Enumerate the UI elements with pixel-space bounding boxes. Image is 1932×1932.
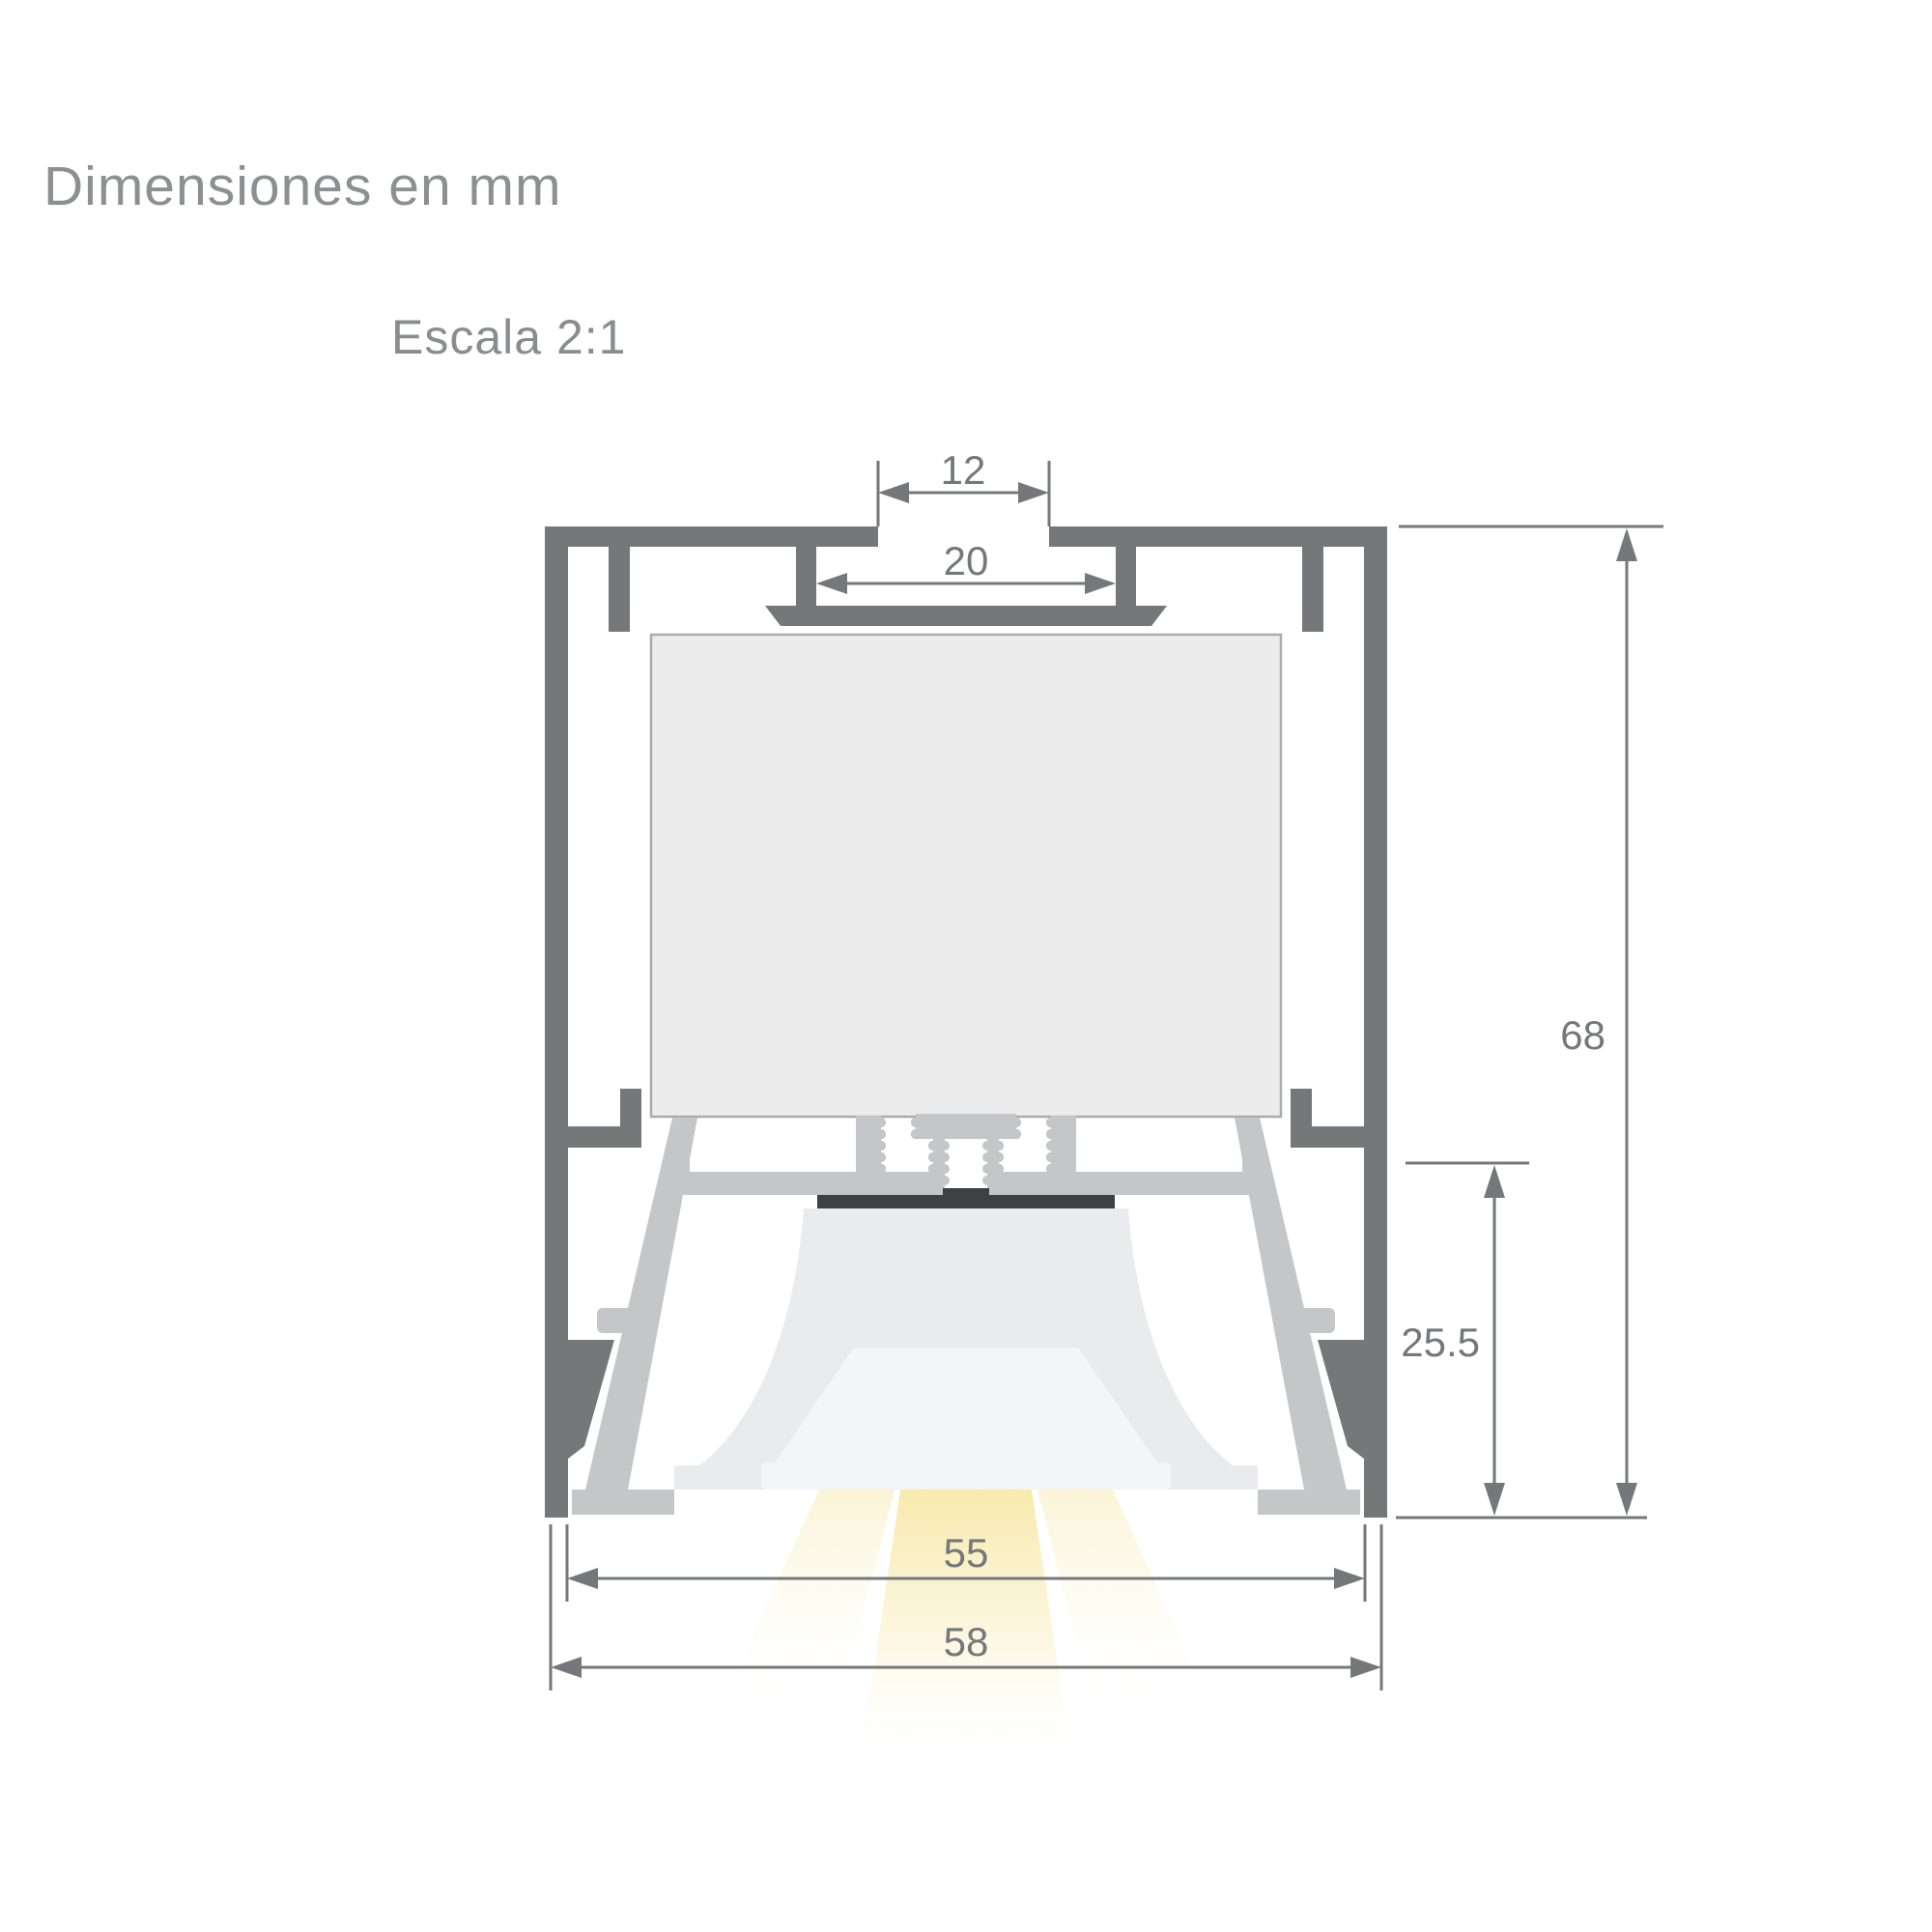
led-chip [943,1188,989,1196]
upper-hook-right [1302,547,1323,632]
dim-12-arrow-right [1018,482,1049,503]
diffuser-lip [761,1463,1171,1490]
lower-hook-left [620,1089,641,1126]
light-beam [730,1490,1202,1739]
housing-side-left [585,1118,697,1490]
left-wall [545,526,568,1518]
technical-drawing-page: Dimensiones en mm Escala 2:1 [0,0,1932,1932]
dim-25-arrow-top [1484,1165,1505,1198]
dim-68-label: 68 [1560,1012,1605,1058]
dim-20-label: 20 [944,538,989,583]
housing-foot-left [572,1490,674,1515]
beam-left [730,1490,895,1686]
slot-floor [765,606,1167,626]
housing-tab-right [1277,1308,1335,1333]
lower-ledge-left [568,1126,641,1148]
screw-core-hole [945,1139,987,1191]
driver-compartment-box [651,635,1281,1117]
beam-right [1037,1490,1202,1686]
dim-12-label: 12 [941,447,986,493]
dim-55-arrow-right [1334,1568,1365,1589]
dim-12-arrow-left [878,482,909,503]
led-board [817,1195,1115,1208]
dim-58-arrow-right [1350,1657,1381,1678]
housing-foot-right [1258,1490,1360,1515]
housing-side-right [1235,1118,1347,1490]
profile-cross-section-drawing: 12 20 68 25.5 [0,0,1932,1932]
top-flange-left [545,526,878,547]
dim-55-arrow-left [567,1568,598,1589]
dim-25-label: 25.5 [1401,1320,1480,1365]
dim-20-arrow-right [1085,573,1116,594]
upper-hook-left [609,547,630,632]
dim-58-arrow-left [551,1657,582,1678]
dim-20-arrow-left [816,573,847,594]
thread-left-boss [876,1118,886,1174]
top-flange-right [1049,526,1387,547]
slot-wall-right [1116,547,1136,606]
dim-68-arrow-bottom [1616,1483,1637,1516]
lower-ledge-right [1291,1126,1364,1148]
dim-58-label: 58 [944,1619,989,1664]
dimension-total-height: 68 [1396,526,1663,1518]
screw-cap [916,1114,1016,1139]
thread-right-boss [1046,1118,1056,1174]
lower-hook-right [1291,1089,1312,1126]
dim-68-arrow-top [1616,528,1637,561]
dimension-lower-section-height: 25.5 [1401,1163,1529,1516]
right-wall [1364,526,1387,1518]
housing-tab-left [597,1308,655,1333]
dim-55-label: 55 [944,1530,989,1576]
dimension-top-slot-width: 12 [878,447,1049,526]
beam-center [864,1490,1068,1739]
dim-25-arrow-bottom [1484,1483,1505,1516]
slot-wall-left [796,547,816,606]
